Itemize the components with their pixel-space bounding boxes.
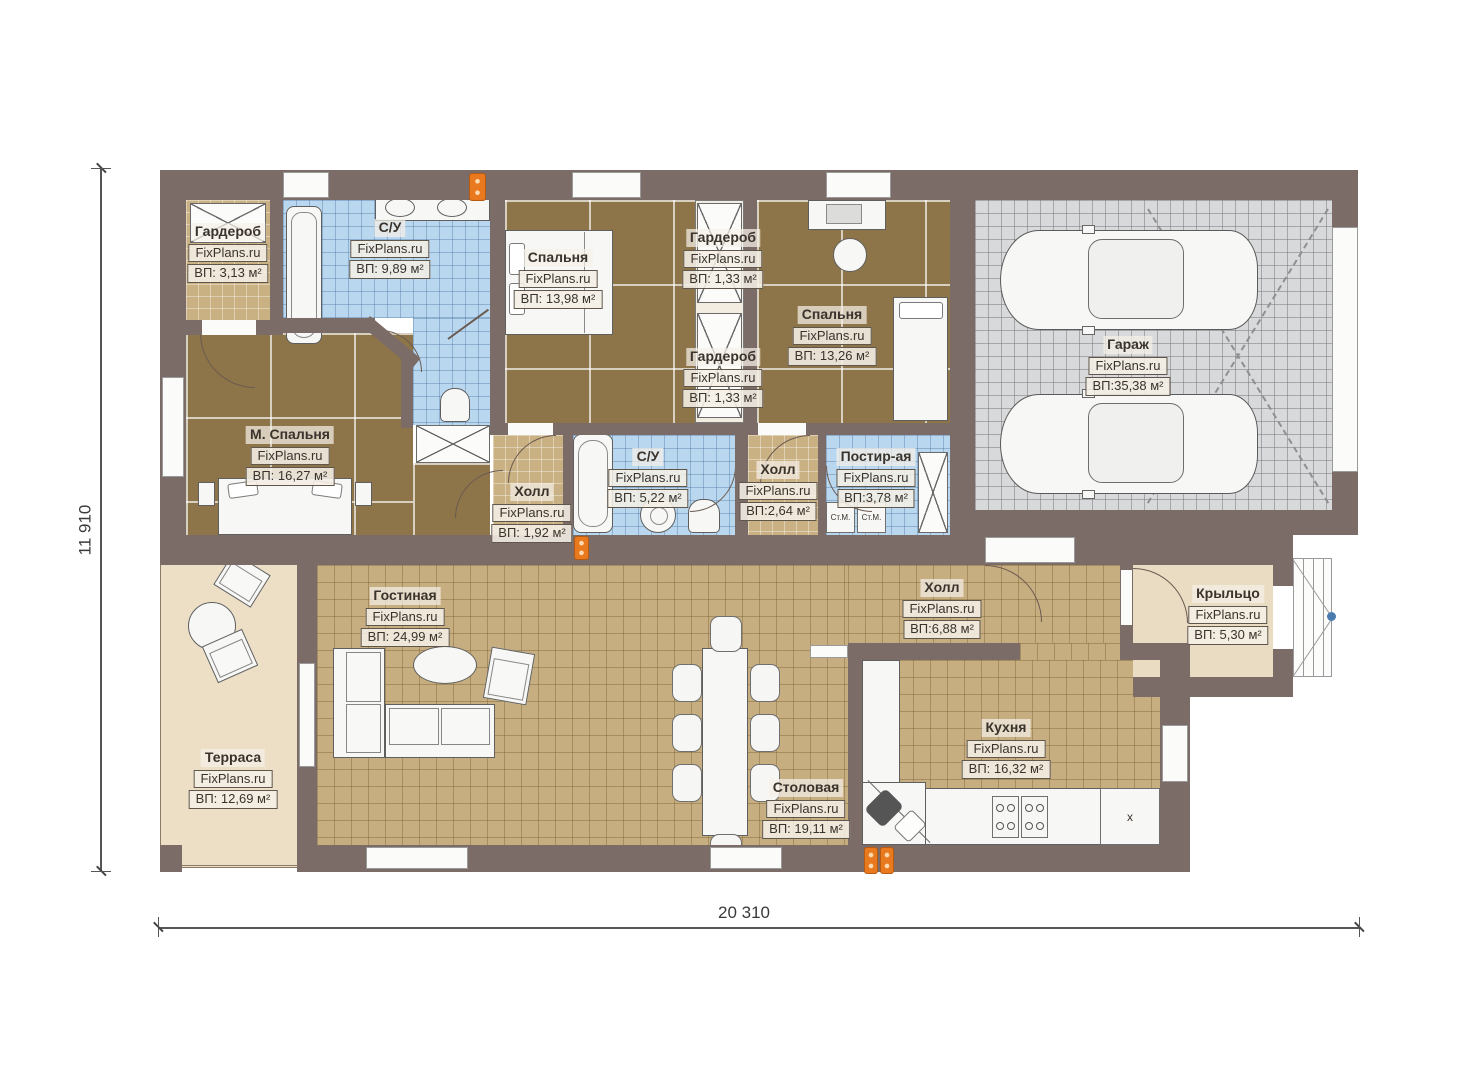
wall-corridor-left xyxy=(401,358,413,428)
dimension-line-bottom xyxy=(158,927,1360,929)
wall-garage-bottom xyxy=(950,510,1358,535)
coffee-table xyxy=(413,646,477,684)
dimension-width-label: 20 310 xyxy=(718,903,770,923)
kitchen-counter-left xyxy=(862,660,900,788)
wall-wardrobe-bath xyxy=(270,200,283,333)
window-separating-wall xyxy=(985,537,1075,563)
room-area: ВП: 16,27 м² xyxy=(246,467,335,485)
room-name: Гараж xyxy=(1103,336,1153,354)
toilet-main xyxy=(440,388,470,422)
room-label-dining: Столовая FixPlans.ru ВП: 19,11 м² xyxy=(762,778,850,839)
kitchen-pass-sill xyxy=(810,645,848,658)
boiler-marker-mid xyxy=(574,536,589,560)
room-name: С/У xyxy=(633,448,664,466)
wall-outer-left xyxy=(160,200,186,535)
room-label-wardrobe-mid-top: Гардероб FixPlans.ru ВП: 1,33 м² xyxy=(682,228,763,289)
room-name: Столовая xyxy=(769,779,844,797)
door-gap-porch xyxy=(1121,570,1132,625)
wall-rowb-3 xyxy=(806,423,950,435)
room-name: Спальня xyxy=(524,249,592,267)
room-name: С/У xyxy=(375,219,406,237)
dining-chair xyxy=(750,714,780,752)
door-gap-bedroom-right xyxy=(758,423,806,435)
floor-plan: Ст.М. Ст.М. xyxy=(0,0,1474,1080)
sink-icon-2 xyxy=(437,198,467,217)
boiler-marker-top xyxy=(469,173,486,201)
window-bottom-2 xyxy=(710,847,782,869)
wall-kitchen-top xyxy=(848,643,1020,660)
room-label-bedroom-top: Спальня FixPlans.ru ВП: 13,98 м² xyxy=(514,248,603,309)
window-bottom-1 xyxy=(366,847,468,869)
kitchen-sink-corner xyxy=(862,782,926,845)
room-name: Холл xyxy=(756,461,799,479)
washer-label: Ст.М. xyxy=(831,513,851,522)
room-watermark: FixPlans.ru xyxy=(683,250,762,268)
room-area: ВП: 1,33 м² xyxy=(682,270,763,288)
window-kitchen xyxy=(1162,725,1188,782)
room-label-bathroom-main: С/У FixPlans.ru ВП: 9,89 м² xyxy=(349,218,430,279)
car-2 xyxy=(1000,394,1258,494)
wall-terrace-post xyxy=(160,845,182,872)
dining-chair xyxy=(710,616,742,652)
room-name: Крыльцо xyxy=(1192,585,1264,603)
room-name: Спальня xyxy=(798,306,866,324)
dining-chair xyxy=(672,664,702,702)
room-name: Кухня xyxy=(982,719,1031,737)
dimension-height-label: 11 910 xyxy=(75,505,95,556)
armchair xyxy=(483,647,535,706)
boiler-marker-bottom-1 xyxy=(864,847,878,874)
room-name: Гардероб xyxy=(686,348,760,366)
room-watermark: FixPlans.ru xyxy=(766,800,845,818)
room-name: Терраса xyxy=(201,749,265,767)
sink-icon-1 xyxy=(385,198,415,217)
room-watermark: FixPlans.ru xyxy=(188,244,267,262)
window-top-3 xyxy=(826,172,891,198)
room-area: ВП: 3,13 м² xyxy=(187,264,268,282)
room-area: ВП: 9,89 м² xyxy=(349,260,430,278)
washer-label: Ст.М. xyxy=(862,513,882,522)
dining-chair xyxy=(750,664,780,702)
wall-rowb-1 xyxy=(490,423,508,435)
wall-house-garage xyxy=(950,200,975,510)
wall-dining-kitchen xyxy=(848,653,862,845)
boiler-marker-bottom-2 xyxy=(880,847,894,874)
room-watermark: FixPlans.ru xyxy=(683,369,762,387)
floor-kitchen-entry xyxy=(1020,643,1120,660)
room-area: ВП: 13,98 м² xyxy=(514,290,603,308)
room-name: Холл xyxy=(920,579,963,597)
room-area: ВП: 1,92 м² xyxy=(491,524,572,542)
room-label-kitchen: Кухня FixPlans.ru ВП: 16,32 м² xyxy=(962,718,1051,779)
room-name: М. Спальня xyxy=(246,426,334,444)
room-watermark: FixPlans.ru xyxy=(836,469,915,487)
room-watermark: FixPlans.ru xyxy=(1188,606,1267,624)
garage-door-opening xyxy=(1332,227,1358,472)
window-terrace-living xyxy=(299,663,315,767)
room-area: ВП: 16,32 м² xyxy=(962,760,1051,778)
room-area: ВП: 19,11 м² xyxy=(762,820,850,838)
room-watermark: FixPlans.ru xyxy=(902,600,981,618)
room-area: ВП: 12,69 м² xyxy=(189,790,278,808)
wall-rowb-2 xyxy=(553,423,758,435)
wall-porch-post-top xyxy=(1273,558,1293,586)
pillow xyxy=(899,302,943,319)
room-watermark: FixPlans.ru xyxy=(518,270,597,288)
room-watermark: FixPlans.ru xyxy=(492,504,571,522)
wall-hallmid-laundry xyxy=(818,435,826,535)
room-area: ВП: 5,30 м² xyxy=(1187,626,1268,644)
room-label-wardrobe-mid-bottom: Гардероб FixPlans.ru ВП: 1,33 м² xyxy=(682,347,763,408)
laundry-closet-box xyxy=(918,452,948,533)
stove-burners-2 xyxy=(1021,796,1048,838)
room-label-hall-mid: Холл FixPlans.ru ВП:2,64 м² xyxy=(738,460,817,521)
room-area: ВП:6,88 м² xyxy=(903,620,981,638)
entrance-marker-dot xyxy=(1327,612,1336,621)
door-gap-wardrobe xyxy=(202,320,256,335)
dining-chair xyxy=(672,714,702,752)
dimension-end xyxy=(158,917,159,937)
room-label-living: Гостиная FixPlans.ru ВП: 24,99 м² xyxy=(361,586,450,647)
room-label-hall-small: Холл FixPlans.ru ВП: 1,92 м² xyxy=(491,482,572,543)
room-area: ВП: 24,99 м² xyxy=(361,628,450,646)
room-label-bathroom-small: С/У FixPlans.ru ВП: 5,22 м² xyxy=(607,447,688,508)
room-label-bedroom-right: Спальня FixPlans.ru ВП: 13,26 м² xyxy=(788,305,877,366)
room-watermark: FixPlans.ru xyxy=(608,469,687,487)
room-label-porch: Крыльцо FixPlans.ru ВП: 5,30 м² xyxy=(1187,584,1268,645)
floor-hall-entry xyxy=(848,565,1120,643)
room-name: Гардероб xyxy=(191,223,265,241)
wall-outer-top xyxy=(160,170,1358,200)
wall-garage-right-bottom xyxy=(1332,472,1358,535)
room-area: ВП: 5,22 м² xyxy=(607,489,688,507)
room-label-wardrobe-left: Гардероб FixPlans.ru ВП: 3,13 м² xyxy=(187,222,268,283)
dining-chair xyxy=(672,764,702,802)
room-area: ВП: 13,26 м² xyxy=(788,347,877,365)
room-watermark: FixPlans.ru xyxy=(250,447,329,465)
room-area: ВП: 1,33 м² xyxy=(682,389,763,407)
dining-table xyxy=(702,648,748,836)
room-name: Гардероб xyxy=(686,229,760,247)
room-name: Холл xyxy=(510,483,553,501)
wall-garage-right-top xyxy=(1332,200,1358,230)
room-watermark: FixPlans.ru xyxy=(738,482,817,500)
room-label-terrace: Терраса FixPlans.ru ВП: 12,69 м² xyxy=(189,748,278,809)
desk-equipment xyxy=(826,204,862,224)
desk-chair xyxy=(833,238,867,272)
window-top-2 xyxy=(572,172,641,198)
wall-wardrobe-bottom-l xyxy=(186,320,202,335)
room-watermark: FixPlans.ru xyxy=(193,770,272,788)
shaft-box xyxy=(416,425,490,463)
kitchen-cabinet-x: x xyxy=(1100,788,1160,845)
room-name: Гостиная xyxy=(369,587,440,605)
nightstand-right xyxy=(355,482,372,506)
wall-porch-post-bottom xyxy=(1273,649,1293,677)
car-1 xyxy=(1000,230,1258,330)
room-area: ВП:2,64 м² xyxy=(739,502,817,520)
wall-wardrobe-bottom-r xyxy=(256,320,283,335)
room-label-garage: Гараж FixPlans.ru ВП:35,38 м² xyxy=(1085,335,1170,396)
floor-terrace xyxy=(160,558,297,868)
dimension-line-left xyxy=(100,168,102,872)
door-gap-bedroom-top xyxy=(508,423,553,435)
room-label-master-bedroom: М. Спальня FixPlans.ru ВП: 16,27 м² xyxy=(246,425,335,486)
dimension-end xyxy=(91,871,111,872)
room-area: ВП:35,38 м² xyxy=(1085,377,1170,395)
dimension-end xyxy=(1359,917,1360,937)
room-watermark: FixPlans.ru xyxy=(792,327,871,345)
dimension-end xyxy=(91,168,111,169)
window-left xyxy=(162,377,184,477)
cabinet-x-label: x xyxy=(1127,810,1133,824)
room-label-laundry: Постир-ая FixPlans.ru ВП:3,78 м² xyxy=(836,447,915,508)
room-watermark: FixPlans.ru xyxy=(350,240,429,258)
sofa-vertical xyxy=(333,648,385,758)
window-top-1 xyxy=(283,172,329,198)
room-watermark: FixPlans.ru xyxy=(365,608,444,626)
room-label-hall-entry: Холл FixPlans.ru ВП:6,88 м² xyxy=(902,578,981,639)
wall-porch-bottom xyxy=(1133,677,1293,697)
room-name: Постир-ая xyxy=(837,448,916,466)
stove-burners-1 xyxy=(992,796,1019,838)
room-area: ВП:3,78 м² xyxy=(837,489,915,507)
wall-bath-bedroom xyxy=(490,200,505,423)
nightstand-left xyxy=(198,482,215,506)
sofa-horizontal xyxy=(385,704,495,758)
room-watermark: FixPlans.ru xyxy=(966,740,1045,758)
room-watermark: FixPlans.ru xyxy=(1088,357,1167,375)
